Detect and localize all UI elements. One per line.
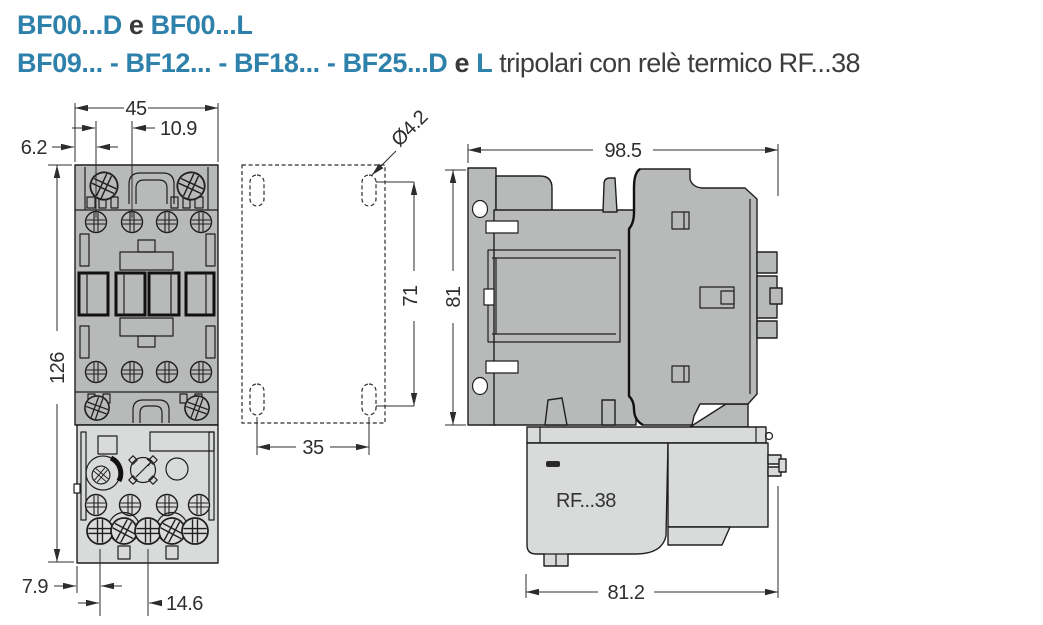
page-title: BF00...D e BF00...L BF09... - BF12... - …	[17, 6, 860, 82]
side-tab	[602, 400, 615, 425]
dim-label-35: 35	[302, 437, 324, 459]
dim-label-81: 81	[443, 286, 465, 308]
relay-step	[668, 527, 730, 545]
catalog-drawing-page: BF00...D e BF00...L BF09... - BF12... - …	[0, 0, 1043, 625]
dim-hole-spacing-vertical: 71	[400, 182, 422, 406]
mounting-view: Ø4.2 71 35	[242, 106, 432, 459]
side-front-housing	[629, 169, 757, 425]
title-conjunction-1: e	[122, 10, 151, 40]
dim-label-98-5: 98.5	[605, 140, 642, 162]
dim-edge-offset: 6.2	[21, 137, 118, 159]
thermal-relay-side: RF...38	[527, 427, 786, 566]
thermal-relay-front	[74, 425, 218, 563]
dim-label-126: 126	[47, 352, 69, 384]
side-back-body	[494, 210, 636, 425]
plate-notch	[486, 361, 518, 373]
relay-right-block	[668, 443, 768, 527]
dim-overall-height: 126	[47, 165, 69, 562]
title-series-1: BF00...D	[17, 10, 122, 40]
side-coil-block	[496, 176, 552, 212]
title-conjunction-2: e	[447, 48, 476, 78]
plate-hole	[473, 201, 488, 218]
aux-contact-tabs	[757, 252, 782, 338]
mounting-slot	[362, 384, 376, 415]
dim-label-71: 71	[400, 285, 422, 307]
dim-label-4-2: Ø4.2	[387, 106, 432, 151]
title-description: tripolari con relè termico RF...38	[492, 48, 860, 78]
side-latch-tab	[603, 178, 617, 212]
title-series-2: BF00...L	[151, 10, 253, 40]
dim-label-7-9: 7.9	[22, 576, 49, 598]
relay-lip	[527, 427, 766, 443]
mounting-slot	[250, 384, 264, 415]
dim-pole-pitch: 10.9	[72, 118, 197, 140]
mounting-dimensions: Ø4.2 71 35	[257, 106, 432, 459]
plate-hole	[473, 378, 488, 395]
title-line-1: BF00...D e BF00...L	[17, 6, 860, 44]
mounting-slot	[250, 175, 264, 206]
dim-side-height: 81	[443, 170, 465, 425]
mounting-slot	[362, 175, 376, 206]
dim-label-45: 45	[125, 98, 147, 120]
dim-hole-spacing-horizontal: 35	[257, 437, 369, 459]
dim-relay-edge-offset: 7.9	[22, 576, 122, 598]
title-series-4: L	[476, 48, 492, 78]
dim-overall-depth: 98.5	[468, 140, 778, 162]
relay-type-label: RF...38	[556, 490, 616, 512]
mounting-outline	[242, 165, 385, 423]
dim-relay-terminal-pitch: 14.6	[78, 593, 203, 615]
technical-drawing: 45 10.9 6.2 126	[0, 0, 1043, 625]
dim-label-10-9: 10.9	[160, 118, 197, 140]
front-view: 45 10.9 6.2 126	[21, 98, 218, 616]
relay-slot	[546, 461, 560, 467]
dim-label-6-2: 6.2	[21, 137, 48, 159]
title-series-3: BF09... - BF12... - BF18... - BF25...D	[17, 48, 447, 78]
title-line-2: BF09... - BF12... - BF18... - BF25...D e…	[17, 44, 860, 82]
relay-side-screw	[768, 455, 786, 476]
side-view: RF...38	[443, 140, 786, 604]
dim-relay-depth: 81.2	[526, 582, 778, 604]
plate-notch	[486, 221, 518, 233]
dim-overall-width: 45	[75, 98, 218, 120]
dim-label-81-2: 81.2	[608, 582, 645, 604]
dim-label-14-6: 14.6	[166, 593, 203, 615]
